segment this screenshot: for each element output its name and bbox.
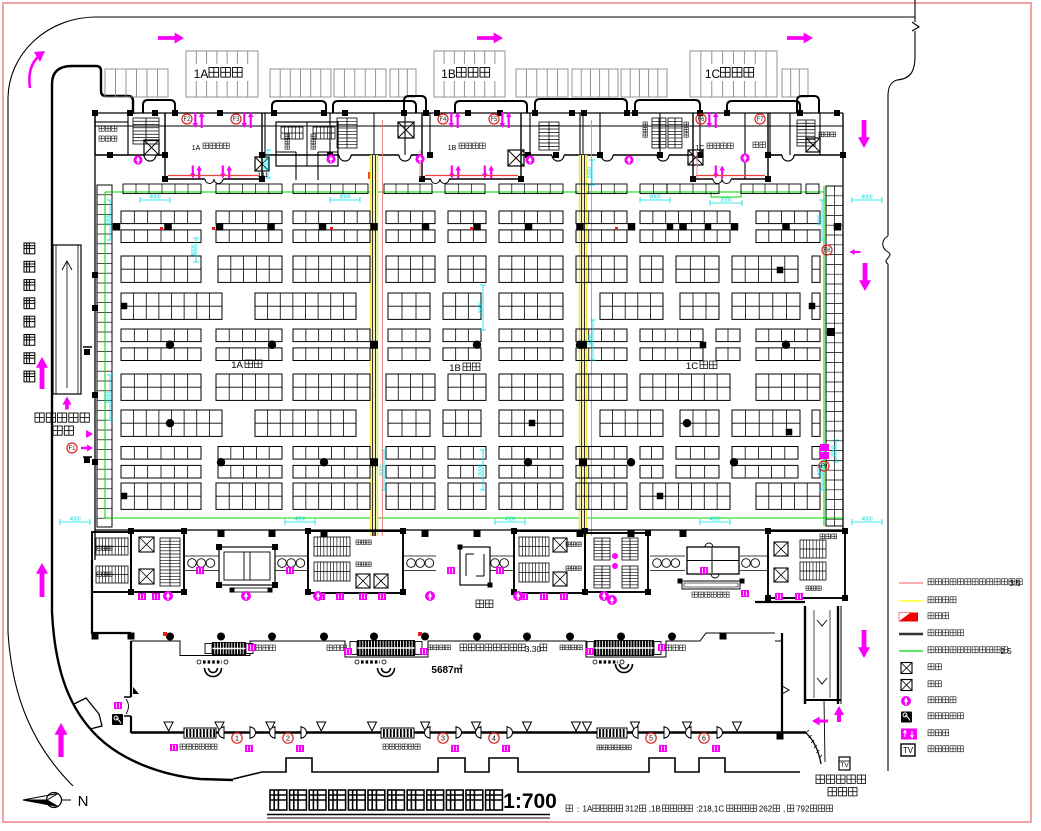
svg-text:1B: 1B (448, 145, 457, 152)
svg-text:F3: F3 (232, 117, 240, 123)
svg-text:8000: 8000 (149, 195, 160, 201)
svg-text:4000: 4000 (69, 517, 80, 523)
svg-text:3.5: 3.5 (1009, 579, 1021, 588)
svg-text:4000: 4000 (294, 517, 305, 523)
svg-text:8000: 8000 (379, 464, 385, 475)
svg-text:4000: 4000 (861, 517, 872, 523)
svg-text:8000: 8000 (587, 167, 593, 178)
svg-text:1B: 1B (441, 67, 456, 81)
svg-text:F8: F8 (823, 248, 831, 254)
svg-text:262: 262 (759, 805, 773, 814)
svg-text:1C: 1C (705, 67, 721, 81)
svg-text:8000: 8000 (105, 392, 111, 403)
svg-text:F4: F4 (439, 117, 447, 123)
svg-text:4000: 4000 (504, 517, 515, 523)
svg-text:8000: 8000 (649, 195, 660, 201)
svg-text:1C: 1C (686, 361, 698, 372)
svg-text:TV: TV (840, 762, 849, 769)
svg-text:F7: F7 (756, 117, 764, 123)
svg-text:3000: 3000 (720, 198, 731, 204)
svg-text:1A: 1A (583, 805, 593, 814)
svg-text:8000: 8000 (861, 195, 872, 201)
svg-text:,: , (783, 805, 785, 814)
svg-text:3.30: 3.30 (525, 644, 542, 654)
svg-text:5: 5 (649, 736, 653, 743)
svg-text::: : (577, 805, 579, 814)
svg-text:F1: F1 (68, 446, 76, 452)
svg-text:1A: 1A (231, 360, 243, 371)
svg-text:4000: 4000 (709, 517, 720, 523)
svg-text:8000: 8000 (105, 214, 111, 225)
svg-text:4: 4 (492, 736, 496, 743)
svg-text:1A: 1A (192, 145, 201, 152)
svg-text:F9: F9 (820, 464, 828, 470)
svg-text:1:700: 1:700 (503, 790, 557, 813)
svg-text:8000: 8000 (817, 214, 823, 225)
svg-text:8000: 8000 (831, 445, 837, 456)
svg-text:8000: 8000 (478, 464, 484, 475)
svg-text:F2: F2 (183, 117, 191, 123)
svg-text:2.5: 2.5 (1001, 647, 1013, 656)
svg-text:8000: 8000 (339, 195, 350, 201)
svg-text:N: N (78, 793, 89, 810)
svg-text:8000: 8000 (191, 244, 197, 255)
svg-text:,1B: ,1B (649, 805, 661, 814)
svg-text:1B: 1B (449, 363, 461, 374)
svg-text:6: 6 (702, 736, 706, 743)
svg-text:F6: F6 (697, 117, 705, 123)
svg-text:5687m: 5687m (431, 665, 462, 676)
svg-text:312: 312 (625, 805, 639, 814)
svg-text:1: 1 (235, 736, 239, 743)
svg-text:2: 2 (286, 736, 290, 743)
svg-text:3: 3 (441, 736, 445, 743)
svg-text:8000: 8000 (263, 158, 269, 169)
svg-text::218,1C: :218,1C (696, 805, 724, 814)
svg-text:792: 792 (796, 805, 810, 814)
svg-text:8000: 8000 (588, 334, 594, 345)
svg-text:8000: 8000 (478, 302, 484, 313)
svg-text:TV: TV (903, 746, 914, 755)
svg-text:F5: F5 (490, 117, 498, 123)
svg-text:1A: 1A (194, 67, 209, 81)
